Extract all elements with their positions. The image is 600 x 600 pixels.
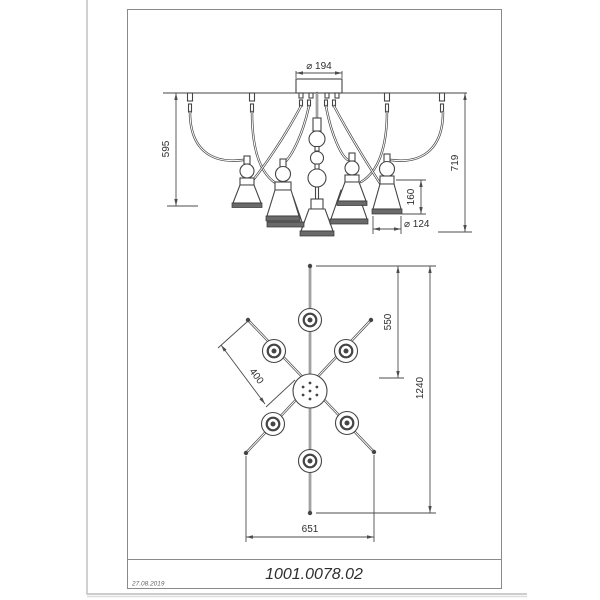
plan-lamp (263, 340, 286, 363)
dim-vertical-arm-reach: 550 (316, 266, 436, 378)
lamp-front-right (372, 154, 402, 214)
shade-fitting (311, 199, 323, 209)
lamp-shade (301, 209, 333, 231)
lamp-back-left (232, 156, 262, 208)
dim-label: ⌀ 194 (306, 61, 332, 72)
drawing-frame (128, 10, 502, 589)
plan-lamp (262, 413, 285, 436)
part-number: 1001.0078.02 (265, 566, 363, 583)
lamp-mid-right (337, 153, 367, 206)
plan-lamp (299, 450, 322, 473)
shade-rim (300, 231, 334, 236)
decor-ball (308, 169, 326, 187)
canopy-tabs (299, 93, 339, 106)
dim-label: 1240 (415, 376, 426, 399)
dim-shade-diameter: ⌀ 124 (373, 216, 430, 234)
plan-lamp (299, 309, 322, 332)
dim-diagonal-arm: 400 (218, 321, 295, 407)
dim-label: 550 (383, 313, 394, 330)
ceiling-canopy (296, 79, 342, 93)
dim-label: 651 (302, 524, 319, 535)
plan-lamp (335, 340, 358, 363)
stem-fitting (313, 118, 321, 131)
dim-outer-drop: 595 (161, 93, 198, 206)
dim-canopy-diameter: ⌀ 194 (296, 61, 342, 78)
decor-ball (311, 152, 324, 165)
plan-view: 550 1240 400 651 (218, 264, 436, 542)
dim-label: 595 (161, 140, 172, 157)
dim-vertical-span: 1240 (316, 266, 436, 513)
dim-label: 160 (406, 188, 417, 205)
lamp-front-left (266, 159, 300, 221)
plan-lamp (336, 412, 359, 435)
plan-hub (293, 374, 327, 408)
drawing-date: 27.08.2019 (131, 581, 165, 588)
dim-label: 719 (450, 154, 461, 171)
drawing-sheet: 1001.0078.02 27.08.2019 (0, 0, 600, 600)
technical-drawing: 1001.0078.02 27.08.2019 (0, 0, 600, 600)
decor-ball (309, 131, 325, 147)
dim-label: ⌀ 124 (404, 219, 430, 230)
side-view: ⌀ 194 595 719 160 (161, 61, 472, 236)
